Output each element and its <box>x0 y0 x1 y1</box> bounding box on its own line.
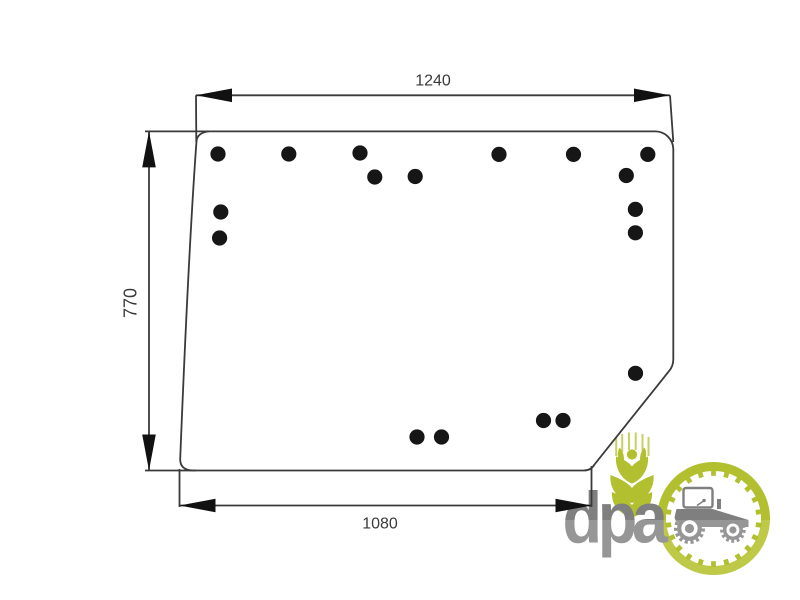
svg-text:d: d <box>563 477 603 558</box>
svg-text:a: a <box>632 477 669 558</box>
svg-text:1080: 1080 <box>362 516 398 533</box>
svg-text:1240: 1240 <box>415 73 451 90</box>
svg-text:770: 770 <box>121 288 141 318</box>
